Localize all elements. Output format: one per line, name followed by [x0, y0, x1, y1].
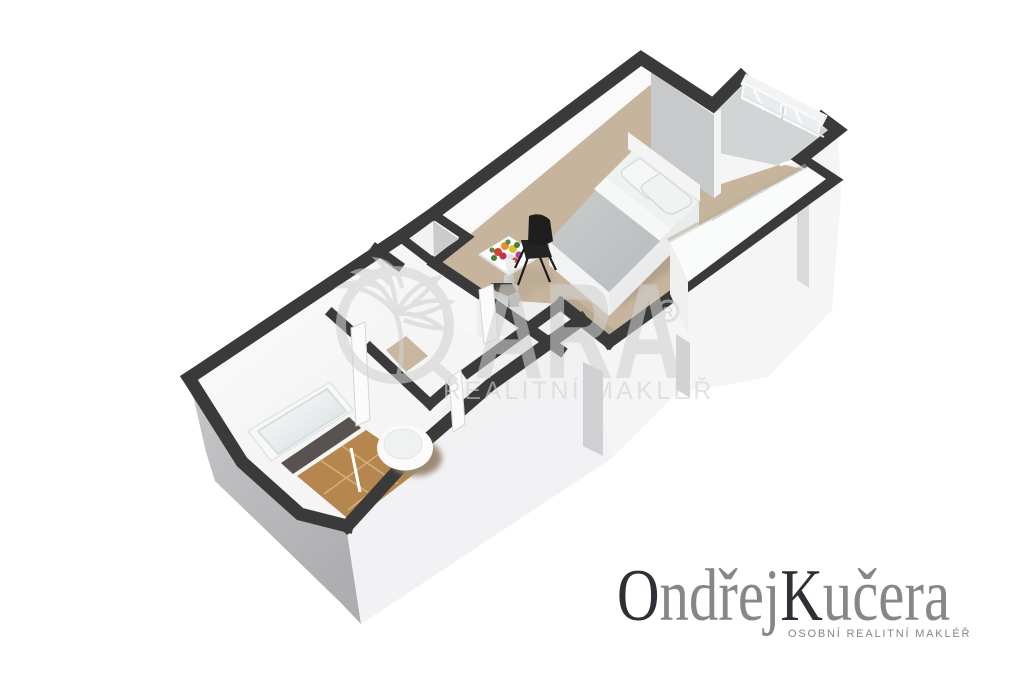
svg-text:REALITNÍ MAKLÉŘ: REALITNÍ MAKLÉŘ	[443, 376, 715, 405]
svg-text:R: R	[663, 304, 674, 321]
svg-text:OndřejKučera: OndřejKučera	[617, 555, 950, 637]
svg-text:OSOBNÍ REALITNÍ MAKLÉŘ: OSOBNÍ REALITNÍ MAKLÉŘ	[788, 627, 971, 640]
